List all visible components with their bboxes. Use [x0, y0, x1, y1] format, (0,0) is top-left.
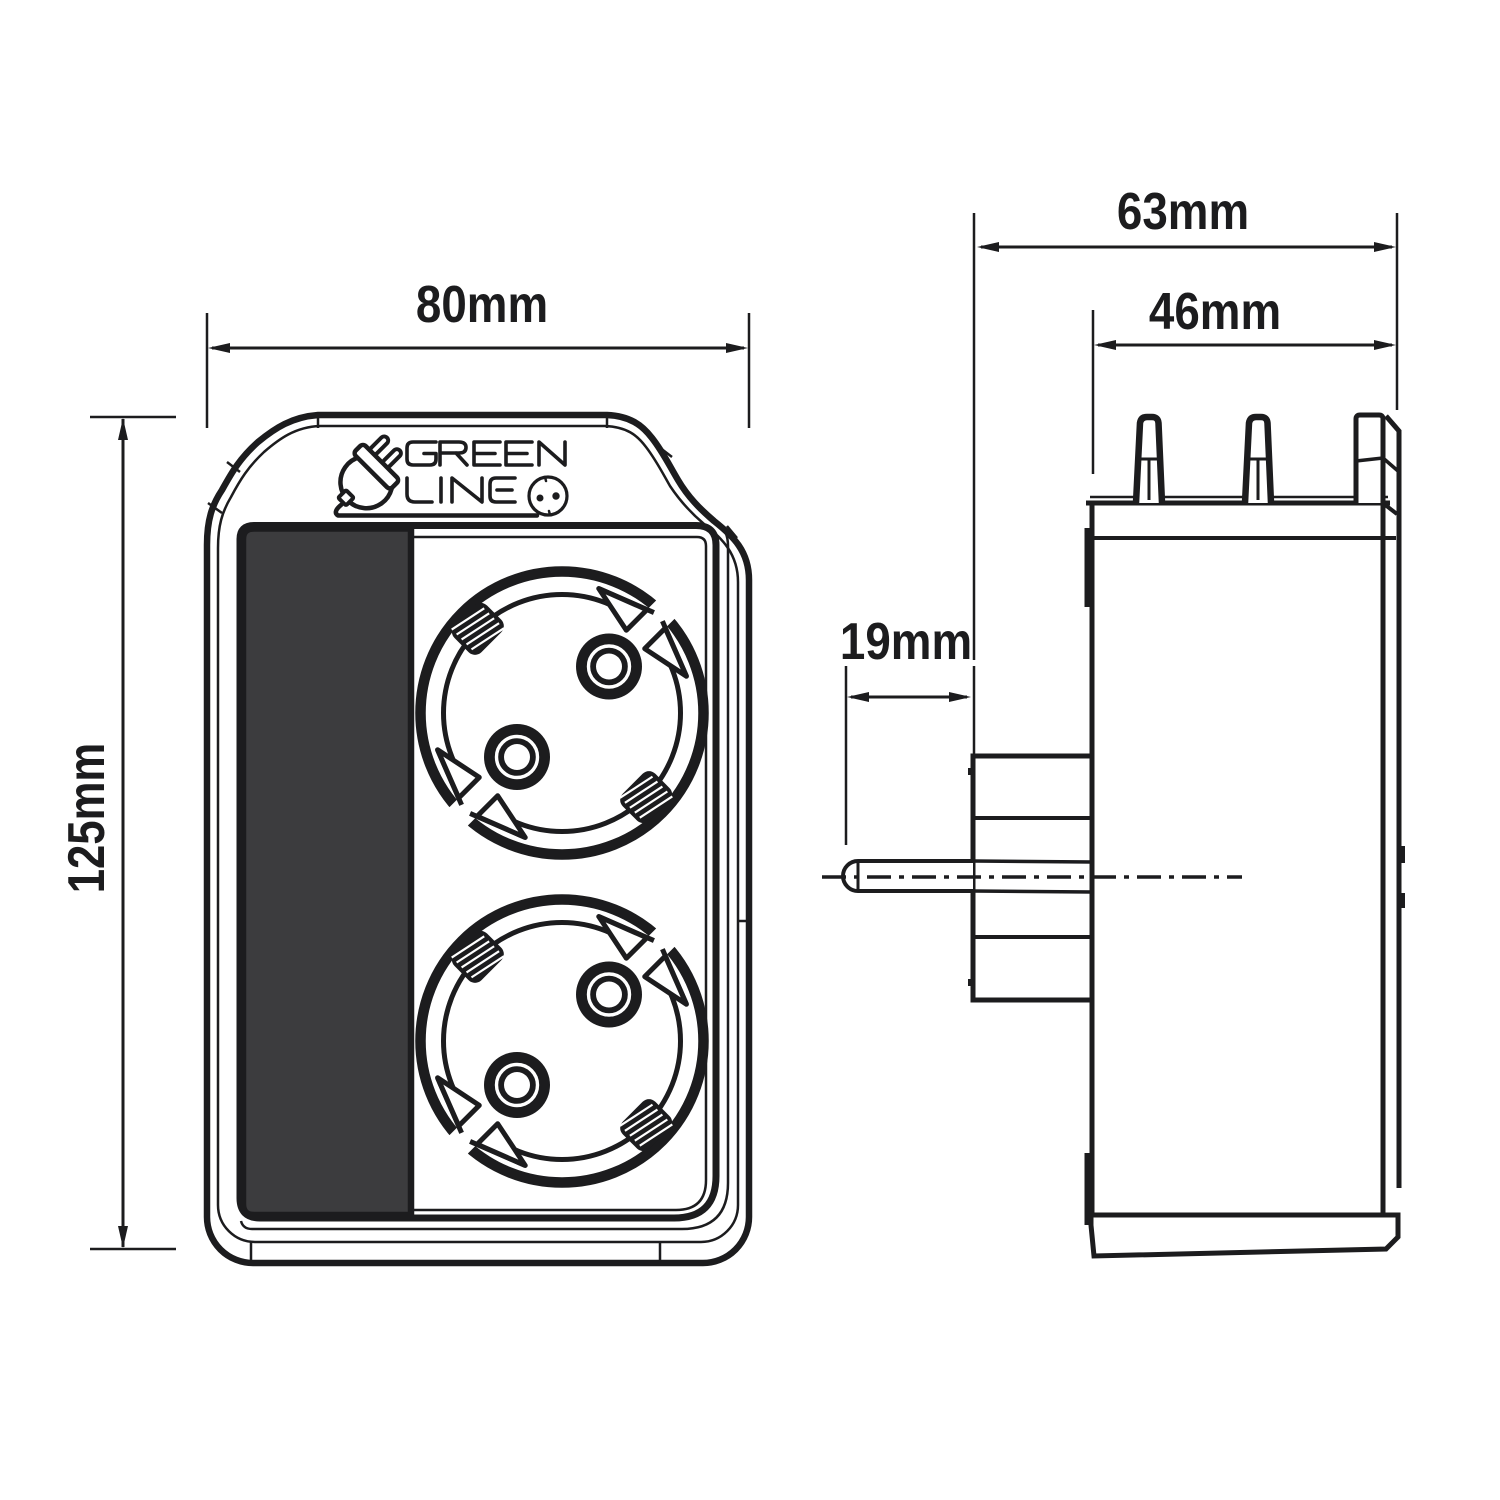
svg-text:63mm: 63mm	[1117, 183, 1249, 240]
svg-text:125mm: 125mm	[59, 743, 116, 894]
svg-text:46mm: 46mm	[1149, 283, 1281, 340]
svg-text:19mm: 19mm	[840, 613, 972, 670]
svg-text:80mm: 80mm	[416, 276, 548, 333]
